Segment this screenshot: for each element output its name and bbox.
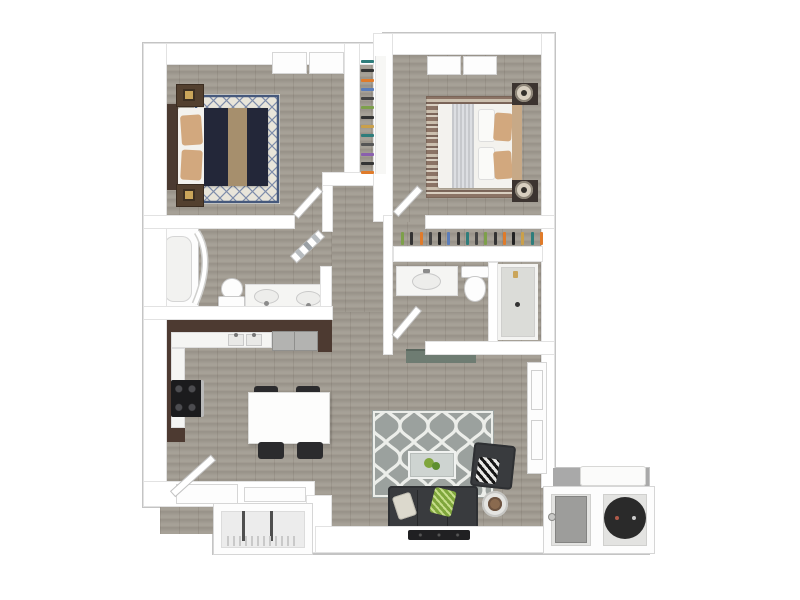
- bedroom1-door-leaf: [293, 187, 322, 218]
- bathroom1-door-leaf: [291, 230, 325, 262]
- entry-door-leaf: [171, 455, 216, 496]
- doors-overlay: [0, 0, 800, 600]
- bathroom2-door-leaf: [392, 306, 421, 339]
- bedroom2-door-leaf: [393, 186, 422, 216]
- floor-plan: [0, 0, 800, 600]
